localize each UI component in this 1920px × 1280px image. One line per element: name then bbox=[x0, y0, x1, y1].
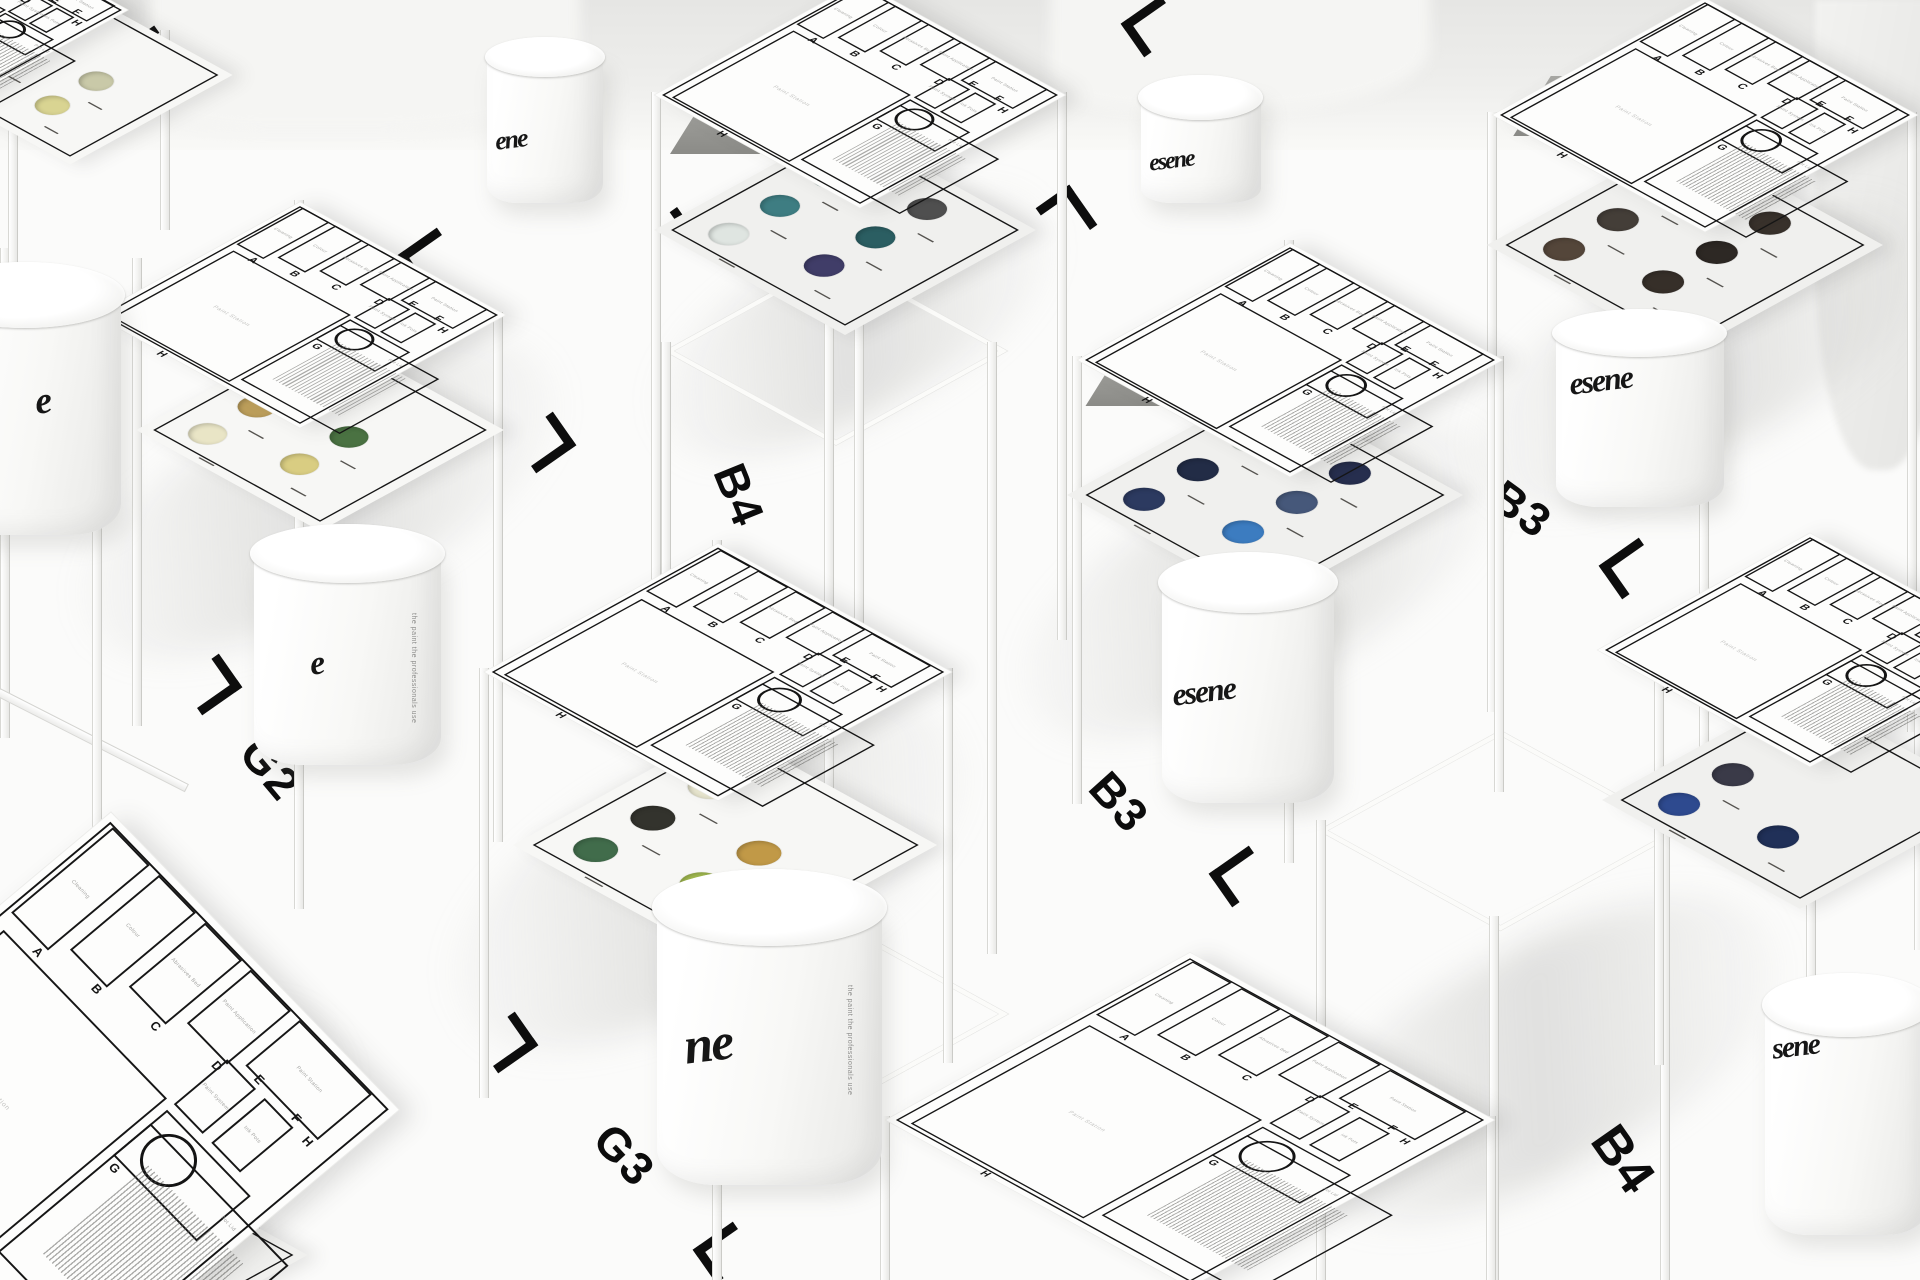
paint-sample-dot bbox=[72, 68, 121, 95]
zone-label: Ink Pots bbox=[242, 1125, 262, 1145]
zone-label: Abrasives Bed bbox=[766, 606, 799, 624]
zone-label: Ink Pots bbox=[958, 102, 979, 113]
zone-label: Ink Pots bbox=[1807, 123, 1828, 134]
zone-label: Paint Station bbox=[1424, 341, 1454, 357]
zone-letter: C bbox=[887, 62, 904, 71]
zone-label: Paint Station bbox=[1388, 1097, 1418, 1113]
zone-label: Ink Pots bbox=[398, 322, 419, 333]
zone-label: Colour bbox=[1210, 1017, 1227, 1027]
zone-label: Paint System bbox=[1774, 105, 1805, 122]
paint-sample-dot bbox=[847, 222, 904, 254]
zone-label: Paint Station bbox=[1066, 1111, 1106, 1133]
bucket-logo: e bbox=[32, 381, 51, 421]
paint-sample-dot bbox=[1650, 788, 1709, 821]
paint-sample-dot bbox=[564, 832, 628, 867]
bucket-logo: ene bbox=[494, 125, 528, 155]
bucket-body: esene bbox=[1556, 333, 1724, 507]
bucket-body: e bbox=[0, 295, 121, 535]
zone-label: Paint Application bbox=[1889, 605, 1920, 626]
bucket-logo: sene bbox=[1770, 1030, 1820, 1066]
zone-label: Paint System bbox=[1359, 350, 1390, 367]
zone-label: Abrasives Bed bbox=[1257, 1037, 1290, 1055]
zone-label: Colour bbox=[732, 592, 749, 602]
paint-sample-dot bbox=[1749, 821, 1808, 854]
zone-label: Cleaning bbox=[832, 7, 854, 19]
zone-label: Colour bbox=[1717, 42, 1734, 52]
zone-label: Abrasives Bed bbox=[170, 957, 202, 989]
stand-leg bbox=[493, 312, 503, 842]
zone-label: Cleaning bbox=[688, 573, 710, 585]
zone-letter: H bbox=[1429, 371, 1446, 380]
paint-bucket: sene bbox=[1762, 990, 1920, 1235]
zone-letter: C bbox=[1319, 326, 1336, 335]
zone-label: Paint Station bbox=[867, 652, 897, 668]
zone-label: Paint Application bbox=[1369, 315, 1407, 336]
paint-bucket: e the paint the professionals use bbox=[250, 540, 445, 765]
paint-bucket: esene bbox=[1552, 322, 1727, 507]
zone-letter: H bbox=[873, 684, 890, 693]
zone-label: Ink Pots bbox=[1912, 658, 1920, 669]
zone-letter: H bbox=[1844, 126, 1861, 135]
bucket-rim bbox=[1158, 552, 1338, 613]
zone-label: Colour bbox=[312, 244, 329, 254]
zone-label: Ink Pots bbox=[1392, 368, 1413, 379]
stand-leg bbox=[1494, 356, 1504, 792]
bucket-body: ne the paint the professionals use bbox=[657, 908, 883, 1185]
zone-letter: C bbox=[1238, 1073, 1255, 1082]
bucket-tagline: the paint the professionals use bbox=[410, 613, 417, 723]
zone-label: Abrasives Bed bbox=[1333, 299, 1366, 317]
zone-letter: H bbox=[299, 1133, 316, 1149]
zone-letter: H bbox=[434, 325, 451, 334]
zone-label: Paint Application bbox=[221, 999, 257, 1036]
zone-label: Abrasives Bed bbox=[1748, 54, 1781, 72]
bucket-logo: esene bbox=[1170, 671, 1236, 710]
paint-sample-dot bbox=[1267, 486, 1326, 519]
zone-label: Paint System bbox=[366, 305, 397, 322]
zone-label: Paint Application bbox=[376, 271, 414, 292]
paint-sample-dot bbox=[1588, 204, 1647, 237]
zone-label: Cleaning bbox=[70, 879, 91, 900]
zone-letter: B bbox=[846, 49, 863, 58]
paint-sample-dot bbox=[28, 92, 77, 119]
bucket-rim bbox=[652, 869, 887, 946]
zone-label: Ink Pots bbox=[41, 15, 62, 26]
zone-label: Paint Station bbox=[429, 297, 459, 313]
zone-label: Paint Application bbox=[807, 623, 845, 644]
zone-label: Paint Station bbox=[619, 662, 659, 684]
bucket-logo: ne bbox=[681, 1016, 735, 1073]
paint-bucket: esene bbox=[1158, 568, 1338, 803]
zone-label: Paint Station bbox=[1613, 105, 1653, 127]
zone-letter: H bbox=[1396, 1136, 1413, 1145]
zone-label: Paint System bbox=[15, 0, 46, 17]
zone-label: Colour bbox=[124, 923, 141, 940]
zone-label: Abrasives Bed bbox=[1853, 589, 1886, 607]
stand-leg bbox=[1057, 92, 1067, 640]
paint-sample-dot bbox=[1703, 759, 1762, 792]
zone-label: Paint System bbox=[1295, 1109, 1326, 1126]
zone-label: Paint System bbox=[1879, 640, 1910, 657]
zone-label: Cleaning bbox=[1262, 269, 1284, 281]
zone-label: Colour bbox=[1302, 287, 1319, 297]
bucket-logo: esene bbox=[1567, 361, 1633, 400]
stand-leg bbox=[1072, 356, 1082, 804]
stand-leg bbox=[8, 120, 18, 280]
bucket-rim bbox=[1552, 309, 1727, 357]
paint-sample-dot bbox=[1115, 483, 1174, 516]
zone-label: Paint System bbox=[200, 1082, 229, 1111]
zone-letter: C bbox=[327, 282, 344, 291]
zone-label: Paint Station bbox=[0, 1073, 11, 1112]
zone-label: Paint Station bbox=[1718, 640, 1758, 662]
zone-label: Colour bbox=[872, 24, 889, 34]
bucket-body: esene bbox=[1162, 582, 1335, 803]
zone-label: Cleaning bbox=[1677, 24, 1699, 36]
zone-label: Paint Station bbox=[211, 305, 251, 327]
zone-letter: B bbox=[1692, 67, 1709, 76]
zone-label: Colour bbox=[1822, 577, 1839, 587]
zone-label: Paint Application bbox=[1784, 70, 1822, 91]
zone-label: Paint System bbox=[795, 662, 826, 679]
zone-letter: C bbox=[1734, 81, 1751, 90]
paint-bucket: ene bbox=[485, 48, 605, 203]
stand-leg bbox=[943, 668, 953, 1063]
zone-label: Paint Station bbox=[294, 1065, 323, 1094]
zone-label: Paint Station bbox=[65, 0, 95, 10]
zone-letter: B bbox=[286, 269, 303, 278]
zone-label: Cleaning bbox=[1782, 559, 1804, 571]
zone-label: Paint System bbox=[926, 85, 957, 102]
zone-label: Paint Station bbox=[771, 85, 811, 107]
paint-sample-dot bbox=[1214, 516, 1273, 549]
paint-sample-dot bbox=[621, 801, 685, 836]
zone-letter: C bbox=[751, 635, 768, 644]
stand-tabletop: HPaint StationACleaningBColourCAbrasives… bbox=[0, 813, 399, 1280]
zone-label: Paint Station bbox=[1198, 350, 1238, 372]
paint-bucket: esene bbox=[1138, 83, 1263, 203]
paint-sample-dot bbox=[272, 449, 327, 479]
paint-sample-dot bbox=[1535, 233, 1594, 266]
bucket-rim bbox=[1138, 75, 1263, 121]
bucket-body: e the paint the professionals use bbox=[254, 554, 441, 766]
zone-label: Abrasives Bed bbox=[901, 36, 934, 54]
zone-letter: B bbox=[705, 620, 722, 629]
zone-label: Abrasives Bed bbox=[341, 256, 374, 274]
frame-leg bbox=[987, 342, 997, 954]
paint-sample-dot bbox=[1687, 236, 1746, 269]
zone-label: Ink Pots bbox=[1339, 1134, 1360, 1145]
paint-bucket: e bbox=[0, 280, 125, 535]
zone-letter: B bbox=[1277, 312, 1294, 321]
zone-label: Cleaning bbox=[1153, 993, 1175, 1005]
zone-letter: B bbox=[1797, 602, 1814, 611]
paint-sample-dot bbox=[180, 419, 235, 449]
stand-leg bbox=[1654, 645, 1664, 1065]
bucket-body: ene bbox=[487, 57, 602, 203]
paint-sample-dot bbox=[1634, 266, 1693, 299]
exhibition-photo: G2 B4 B3 B3 G3 B4 HPaint St bbox=[0, 0, 1920, 1280]
bucket-rim bbox=[1762, 973, 1920, 1037]
paint-sample-dot bbox=[795, 250, 852, 282]
zone-letter: C bbox=[1839, 616, 1856, 625]
paint-sample-dot bbox=[751, 190, 808, 222]
bucket-rim bbox=[250, 524, 445, 583]
zone-letter: H bbox=[994, 105, 1011, 114]
paint-sample-dot bbox=[1168, 454, 1227, 487]
paint-bucket: ne the paint the professionals use bbox=[652, 890, 887, 1185]
zone-label: Paint Station bbox=[989, 77, 1019, 93]
zone-letter: B bbox=[88, 981, 105, 997]
zone-label: Paint Application bbox=[1311, 1059, 1349, 1080]
bucket-logo: e bbox=[308, 646, 325, 681]
zone-label: Paint Station bbox=[1839, 96, 1869, 112]
stand-leg bbox=[479, 668, 489, 1098]
paint-sample-dot bbox=[700, 218, 757, 250]
zone-letter: C bbox=[147, 1018, 164, 1034]
bucket-tagline: the paint the professionals use bbox=[846, 985, 853, 1095]
stand-leg bbox=[1486, 1116, 1496, 1280]
zone-letter: B bbox=[1177, 1053, 1194, 1062]
zone-label: Ink Pots bbox=[831, 681, 852, 692]
zone-label: Paint Application bbox=[936, 51, 974, 72]
bucket-body: sene bbox=[1765, 1005, 1920, 1235]
station-map: HPaint StationACleaningBColourCAbrasives… bbox=[0, 813, 399, 1280]
bucket-logo: esene bbox=[1148, 146, 1195, 175]
paint-sample-dot bbox=[727, 836, 791, 871]
zone-label: Cleaning bbox=[272, 227, 294, 239]
